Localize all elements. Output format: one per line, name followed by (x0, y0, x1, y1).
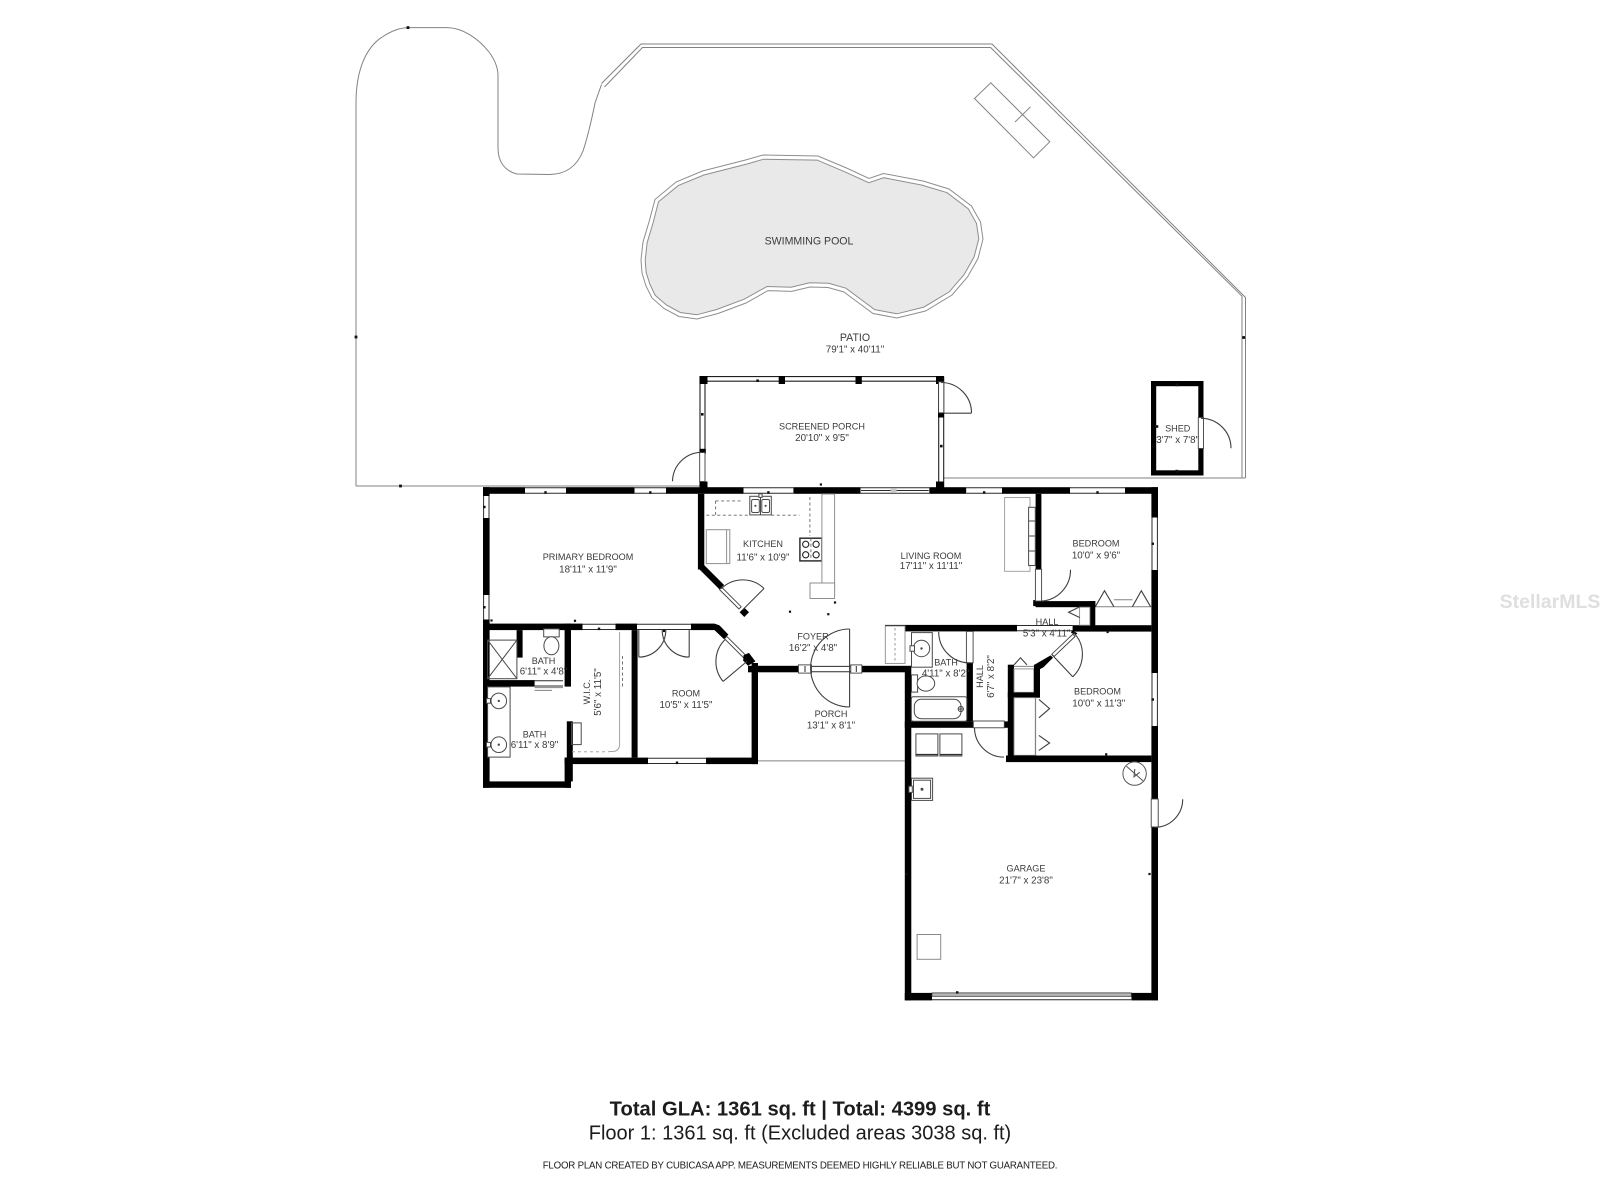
svg-text:6'11" x 4'8": 6'11" x 4'8" (520, 667, 568, 678)
svg-text:HALL: HALL (975, 665, 985, 688)
svg-text:GARAGE: GARAGE (1007, 864, 1046, 874)
svg-text:10'0" x 11'3": 10'0" x 11'3" (1072, 699, 1126, 710)
svg-text:13'1" x 8'1": 13'1" x 8'1" (807, 721, 856, 732)
svg-text:BATH: BATH (523, 730, 547, 740)
svg-text:BATH: BATH (934, 658, 958, 668)
svg-text:BEDROOM: BEDROOM (1073, 539, 1120, 549)
svg-text:4'11" x 8'2": 4'11" x 8'2" (922, 669, 970, 680)
svg-text:FLOOR PLAN CREATED BY CUBICASA: FLOOR PLAN CREATED BY CUBICASA APP. MEAS… (543, 1161, 1058, 1172)
svg-text:20'10" x 9'5": 20'10" x 9'5" (795, 433, 849, 444)
svg-text:11'6" x 10'9": 11'6" x 10'9" (736, 553, 790, 564)
svg-text:ROOM: ROOM (672, 689, 700, 699)
svg-text:FOYER: FOYER (797, 632, 829, 642)
svg-text:3'7" x 7'8": 3'7" x 7'8" (1156, 435, 1199, 446)
svg-text:Floor 1: 1361 sq. ft (Excluded: Floor 1: 1361 sq. ft (Excluded areas 303… (589, 1123, 1011, 1145)
svg-text:W.I.C.: W.I.C. (582, 680, 592, 705)
svg-text:10'5" x 11'5": 10'5" x 11'5" (659, 700, 713, 711)
svg-text:PRIMARY BEDROOM: PRIMARY BEDROOM (543, 552, 634, 562)
svg-text:StellarMLS: StellarMLS (1500, 591, 1600, 613)
svg-text:SWIMMING POOL: SWIMMING POOL (765, 236, 854, 248)
svg-text:5'6" x 11'5": 5'6" x 11'5" (593, 668, 604, 716)
svg-text:SCREENED PORCH: SCREENED PORCH (779, 422, 865, 432)
svg-text:BATH: BATH (532, 656, 556, 666)
svg-text:LIVING ROOM: LIVING ROOM (901, 551, 962, 561)
svg-text:KITCHEN: KITCHEN (743, 539, 783, 549)
svg-text:HALL: HALL (1036, 617, 1059, 627)
svg-text:10'0" x 9'6": 10'0" x 9'6" (1072, 551, 1121, 562)
svg-text:18'11" x 11'9": 18'11" x 11'9" (559, 565, 617, 576)
svg-text:6'7" x 8'2": 6'7" x 8'2" (986, 655, 997, 698)
svg-text:PORCH: PORCH (815, 709, 848, 719)
svg-text:6'11" x 8'9": 6'11" x 8'9" (511, 740, 559, 751)
svg-text:BEDROOM: BEDROOM (1074, 687, 1121, 697)
svg-text:5'3" x 4'11": 5'3" x 4'11" (1023, 628, 1071, 639)
svg-text:Total GLA: 1361 sq. ft | Total: Total GLA: 1361 sq. ft | Total: 4399 sq.… (610, 1099, 991, 1121)
svg-text:17'11" x 11'11": 17'11" x 11'11" (900, 561, 963, 572)
svg-text:PATIO: PATIO (840, 332, 870, 344)
svg-text:16'2" x 4'8": 16'2" x 4'8" (789, 643, 838, 654)
svg-text:SHED: SHED (1165, 424, 1191, 434)
svg-text:21'7" x 23'8": 21'7" x 23'8" (999, 876, 1053, 887)
svg-text:79'1" x 40'11": 79'1" x 40'11" (826, 345, 885, 356)
